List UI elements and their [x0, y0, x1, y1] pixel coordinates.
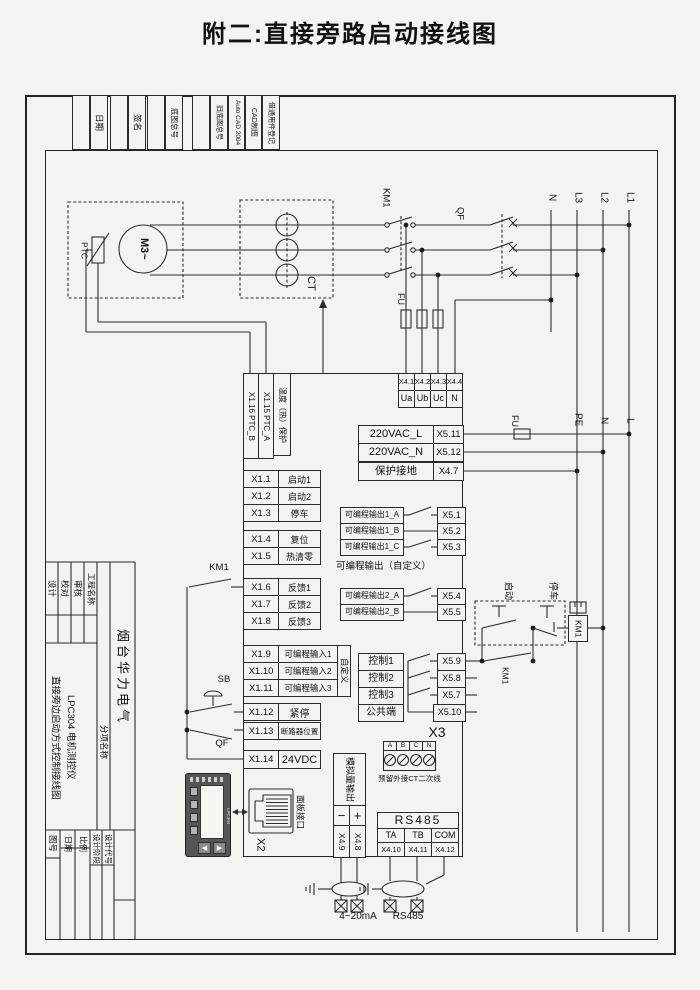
output-1a: 可编程输出1_A — [340, 507, 404, 524]
terminal-id: X1.5 — [244, 548, 279, 564]
contactor-label-km1: KM1 — [378, 184, 393, 212]
km1-hold-label: KM1 — [498, 663, 512, 689]
panel-button — [190, 800, 198, 809]
ct2-caption: 预留外接CT二次线 — [373, 773, 446, 784]
breaker-label-qf: QF — [452, 202, 467, 226]
panel-screen — [200, 785, 224, 839]
terminal-id: X1.7 — [244, 596, 279, 612]
terminal-x5-2: X5.2 — [437, 523, 466, 540]
terminal-row-x1-8: X1.8反馈3 — [243, 612, 321, 630]
terminal-row-x1-13: X1.13断路器位置 — [243, 722, 321, 740]
terminal-x4-11: X4.11 — [404, 842, 432, 857]
display-panel: ◀ ▶ LPC304 — [185, 773, 231, 857]
ct2-b: B — [396, 741, 410, 751]
line-label-l-mid: L — [622, 411, 636, 431]
terminal-label: 复位 — [279, 531, 320, 547]
terminal-row-x1-14: X1.1424VDC — [243, 750, 321, 769]
fuse-label-mid: FU — [508, 410, 521, 432]
terminal-x5-11: X5.11 — [433, 425, 464, 444]
analog-caption: 模拟量输出 — [333, 753, 366, 806]
terminal-n: N — [446, 390, 463, 408]
qf-aux-label: QF — [208, 737, 236, 750]
output-1b: 可编程输出1_B — [340, 523, 404, 540]
header-cell-sign: 签名 — [128, 95, 146, 150]
titleblock-check: 校对 — [58, 563, 71, 615]
line-label-n-mid: N — [596, 411, 610, 431]
line-label-n-top: N — [544, 186, 558, 210]
rs485-tb: TB — [404, 828, 432, 843]
line-label-l3: L3 — [570, 186, 584, 210]
terminal-label: 停车 — [279, 505, 320, 521]
control-3: 控制3 — [358, 687, 404, 705]
terminal-row-x1-2: X1.2启动2 — [243, 487, 321, 505]
terminal-x5-5: X5.5 — [437, 604, 466, 621]
terminal-id: X1.9 — [244, 646, 279, 662]
header-cell-cad2: CAD制图 — [245, 95, 262, 150]
connector-x3-label: X3 — [414, 724, 460, 741]
terminal-x5-3: X5.3 — [437, 539, 466, 556]
terminal-id: X1.11 — [244, 680, 279, 696]
wiring-diagram-page: 附二:直接旁路启动接线图 日期 签名 底图总号 旧底图总号 Auto CAD 2… — [0, 0, 700, 990]
terminal-x5-8: X5.8 — [437, 670, 466, 688]
motor-label: M 3~ — [128, 233, 158, 265]
terminal-id: X1.1 — [244, 471, 279, 487]
terminal-label: 断路器位置 — [279, 723, 320, 739]
terminal-row-x1-10: X1.10可编程输入2 — [243, 662, 338, 680]
titleblock-drawing-no: 图号 — [45, 831, 60, 857]
km1-aux-label: KM1 — [202, 561, 236, 574]
titleblock-design: 设计 — [45, 563, 58, 615]
panel-button — [190, 787, 198, 796]
terminal-x5-10: X5.10 — [433, 704, 466, 722]
rs485-com: COM — [431, 828, 459, 843]
header-cell-borrow: 借通用件登记 — [262, 95, 280, 150]
rs485-title: RS485 — [377, 812, 459, 829]
terminal-row-x1-1: X1.1启动1 — [243, 470, 321, 488]
page-title: 附二:直接旁路启动接线图 — [0, 16, 700, 54]
terminal-id: X1.6 — [244, 579, 279, 595]
titleblock-project-label: 工程名称 — [84, 563, 97, 615]
terminal-x5-12: X5.12 — [433, 443, 464, 462]
panel-button — [190, 826, 198, 835]
cable-label-420ma: 4~20mA — [328, 911, 388, 924]
analog-plus: + — [349, 805, 366, 826]
cable-label-rs485: RS485 — [380, 911, 436, 924]
terminal-x4-1: X4.1 — [398, 373, 415, 391]
supply-ground: 保护接地 — [358, 462, 434, 481]
titleblock-sub-label: 分项名称 — [97, 695, 110, 790]
temp-protect-caption: 温度（热）保护 — [273, 373, 291, 456]
custom-tag: 自定义 — [337, 645, 351, 697]
ptc-label: PTC — [78, 236, 90, 264]
titleblock-product: LPC304 电机测控仪 — [62, 648, 78, 826]
terminal-x4-7: X4.7 — [433, 462, 464, 481]
header-cell-base-no: 底图总号 — [165, 95, 183, 150]
terminal-label: 紧停 — [279, 704, 320, 720]
header-cell-blank — [110, 95, 128, 150]
terminal-label: 启动1 — [279, 471, 320, 487]
terminal-id: X1.13 — [244, 723, 279, 739]
titleblock-date: 日期 — [60, 831, 75, 856]
panel-model-label: LPC304 — [224, 796, 231, 836]
ct-label: CT — [302, 271, 318, 296]
terminal-x5-4: X5.4 — [437, 588, 466, 605]
ct2-a: A — [383, 741, 397, 751]
ct2-n: N — [422, 741, 436, 751]
header-cell-blank — [72, 95, 90, 150]
header-cell-blank — [192, 95, 210, 150]
terminal-id: X1.8 — [244, 613, 279, 629]
terminal-id: X1.4 — [244, 531, 279, 547]
terminal-x5-1: X5.1 — [437, 507, 466, 524]
terminal-x1-15-ptc-a: X1.15 PTC_A — [258, 373, 274, 459]
output-2b: 可编程输出2_B — [340, 604, 404, 621]
outputs-caption: 可编程输出（自定义） — [336, 559, 428, 575]
fuse-label-top: FU — [394, 288, 407, 309]
terminal-label: 反馈2 — [279, 596, 320, 612]
panel-right-arrow-button: ▶ — [213, 842, 226, 854]
terminal-x4-8: X4.8 — [349, 825, 366, 858]
terminal-x5-7: X5.7 — [437, 687, 466, 705]
terminal-label: 启动2 — [279, 488, 320, 504]
panel-left-arrow-button: ◀ — [198, 842, 211, 854]
terminal-id: X1.2 — [244, 488, 279, 504]
analog-minus: − — [333, 805, 350, 826]
motor-m: M — [137, 238, 149, 247]
output-2a: 可编程输出2_A — [340, 588, 404, 605]
terminal-x1-16-ptc-b: X1.16 PTC_B — [243, 373, 259, 459]
terminal-row-x1-11: X1.11可编程输入3 — [243, 679, 338, 697]
ct2-c: C — [409, 741, 423, 751]
supply-220vac-l: 220VAC_L — [358, 425, 434, 444]
terminal-id: X1.12 — [244, 704, 279, 720]
terminal-row-x1-6: X1.6反馈1 — [243, 578, 321, 596]
terminal-row-x1-7: X1.7反馈2 — [243, 595, 321, 613]
terminal-label: 可编程输入3 — [279, 680, 337, 696]
connector-x2-label: X2 — [251, 833, 268, 856]
terminal-id: X1.14 — [244, 751, 279, 768]
terminal-uc: Uc — [430, 390, 447, 408]
terminal-x4-3: X4.3 — [430, 373, 447, 391]
header-cell-old-base-no: 旧底图总号 — [210, 95, 228, 150]
titleblock-scale: 比例 — [75, 831, 90, 856]
titleblock-company: 烟台华力电气 — [110, 590, 135, 765]
terminal-x4-12: X4.12 — [431, 842, 459, 857]
output-1c: 可编程输出1_C — [340, 539, 404, 556]
control-1: 控制1 — [358, 653, 404, 671]
control-common: 公共端 — [358, 704, 404, 722]
supply-220vac-n: 220VAC_N — [358, 443, 434, 462]
panel-button — [190, 813, 198, 822]
terminal-id: X1.3 — [244, 505, 279, 521]
terminal-x4-10: X4.10 — [377, 842, 405, 857]
terminal-ua: Ua — [398, 390, 415, 408]
header-cell-date: 日期 — [90, 95, 108, 150]
terminal-x4-2: X4.2 — [414, 373, 431, 391]
terminal-row-x1-5: X1.5热清零 — [243, 547, 321, 565]
stop-button-label: 停车 — [546, 579, 560, 604]
line-label-l1: L1 — [622, 186, 636, 210]
terminal-ub: Ub — [414, 390, 431, 408]
terminal-row-x1-3: X1.3停车 — [243, 504, 321, 522]
terminal-id: X1.10 — [244, 663, 279, 679]
terminal-row-x1-12: X1.12紧停 — [243, 703, 321, 721]
rs485-ta: TA — [377, 828, 405, 843]
panel-indicator-strip — [190, 777, 224, 782]
terminal-label: 可编程输入1 — [279, 646, 337, 662]
terminal-x4-9: X4.9 — [333, 825, 350, 858]
line-label-pe: PE — [570, 409, 584, 431]
titleblock-stage: 设计阶段 — [90, 831, 102, 867]
titleblock-review: 审核 — [71, 563, 84, 615]
line-label-l2: L2 — [596, 186, 610, 210]
terminal-x5-9: X5.9 — [437, 653, 466, 671]
terminal-label: 24VDC — [279, 751, 320, 768]
motor-phase: 3~ — [137, 247, 149, 260]
control-2: 控制2 — [358, 670, 404, 688]
terminal-x4-4: X4.4 — [446, 373, 463, 391]
header-cell-cad: Auto CAD 2004 — [228, 95, 245, 150]
terminal-label: 可编程输入2 — [279, 663, 337, 679]
terminal-row-x1-9: X1.9可编程输入1 — [243, 645, 338, 663]
panel-port-caption: 面板接口 — [293, 787, 307, 837]
terminal-label: 热清零 — [279, 548, 320, 564]
start-button-label: 启动 — [501, 579, 515, 604]
header-cell-blank — [147, 95, 165, 150]
titleblock-drawing-title: 直接旁边启动方式控制接线图 — [47, 648, 62, 828]
sb-label: SB — [210, 673, 238, 686]
terminal-label: 反馈3 — [279, 613, 320, 629]
km1-coil: KM1 — [568, 615, 588, 642]
terminal-label: 反馈1 — [279, 579, 320, 595]
terminal-row-x1-4: X1.4复位 — [243, 530, 321, 548]
titleblock-code: 设计代号 — [102, 831, 114, 867]
